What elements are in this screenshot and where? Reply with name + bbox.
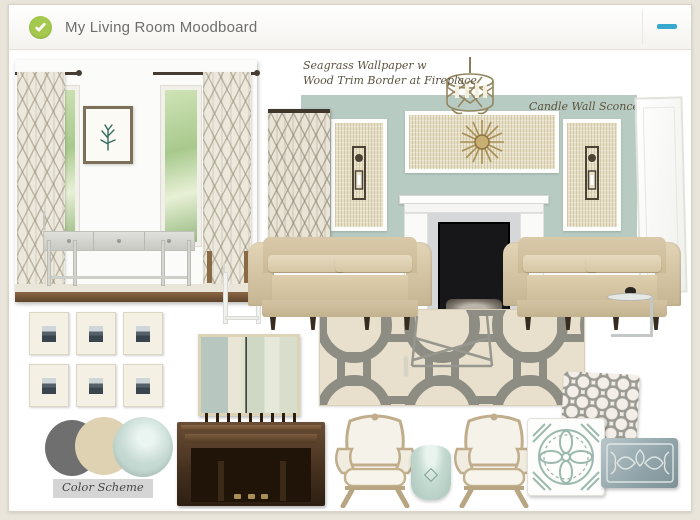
wood-floor — [15, 292, 257, 302]
wallpaper-note-line2: Wood Trim Border at Fireplace — [303, 74, 477, 89]
coral-print-frame — [83, 106, 133, 164]
damask-lumbar-pillow[interactable] — [601, 438, 678, 488]
window-header: My Living Room Moodboard — [9, 5, 691, 50]
checkmark-icon — [29, 16, 52, 39]
gallery-frame — [29, 364, 69, 407]
upright-piano[interactable] — [177, 413, 325, 506]
mantel-shelf — [399, 195, 549, 204]
table-lamp — [187, 146, 227, 214]
medallion-pillow[interactable] — [527, 418, 605, 496]
coral-branch-icon — [96, 118, 120, 152]
header-divider — [642, 10, 643, 44]
color-swatch-seafoam[interactable] — [113, 417, 173, 477]
abstract-striped-art[interactable] — [198, 334, 300, 416]
chrome-c-table[interactable] — [607, 285, 661, 339]
seagrass-wallpaper-panel — [331, 119, 387, 231]
x-base-coffee-table[interactable] — [405, 316, 495, 380]
moodboard-window: My Living Room Moodboard — [8, 4, 692, 512]
candle-wall-sconce-icon — [582, 143, 602, 207]
candle-wall-sconce-icon — [349, 143, 369, 207]
bergere-armchair-left[interactable] — [328, 411, 422, 508]
table-lamp — [44, 146, 84, 214]
piano-bench — [215, 452, 289, 502]
console-table-vignette-photo[interactable] — [15, 60, 257, 302]
gallery-frame — [123, 312, 163, 355]
wallpaper-note-line1: Seagrass Wallpaper w — [303, 59, 477, 74]
drawer — [94, 232, 144, 250]
gallery-frame — [76, 364, 116, 407]
book-stack — [205, 228, 235, 238]
drawer — [44, 232, 94, 250]
minimize-icon[interactable] — [657, 24, 677, 29]
gallery-frame — [123, 364, 163, 407]
gallery-frame — [29, 312, 69, 355]
wallpaper-note: Seagrass Wallpaper w Wood Trim Border at… — [303, 59, 477, 89]
coffee-table-base — [407, 316, 497, 370]
seagrass-wallpaper-panel — [563, 119, 621, 231]
moodboard-canvas: Candle Wall Sconce — [11, 51, 691, 509]
color-scheme-label: Color Scheme — [53, 479, 153, 498]
gallery-frame — [76, 312, 116, 355]
ceramic-garden-stool[interactable] — [411, 445, 451, 500]
window-title: My Living Room Moodboard — [65, 19, 257, 36]
gallery-frame-grid[interactable] — [29, 312, 163, 407]
mirrored-console-table — [43, 212, 195, 288]
trellis-curtain-panel[interactable] — [268, 109, 330, 241]
